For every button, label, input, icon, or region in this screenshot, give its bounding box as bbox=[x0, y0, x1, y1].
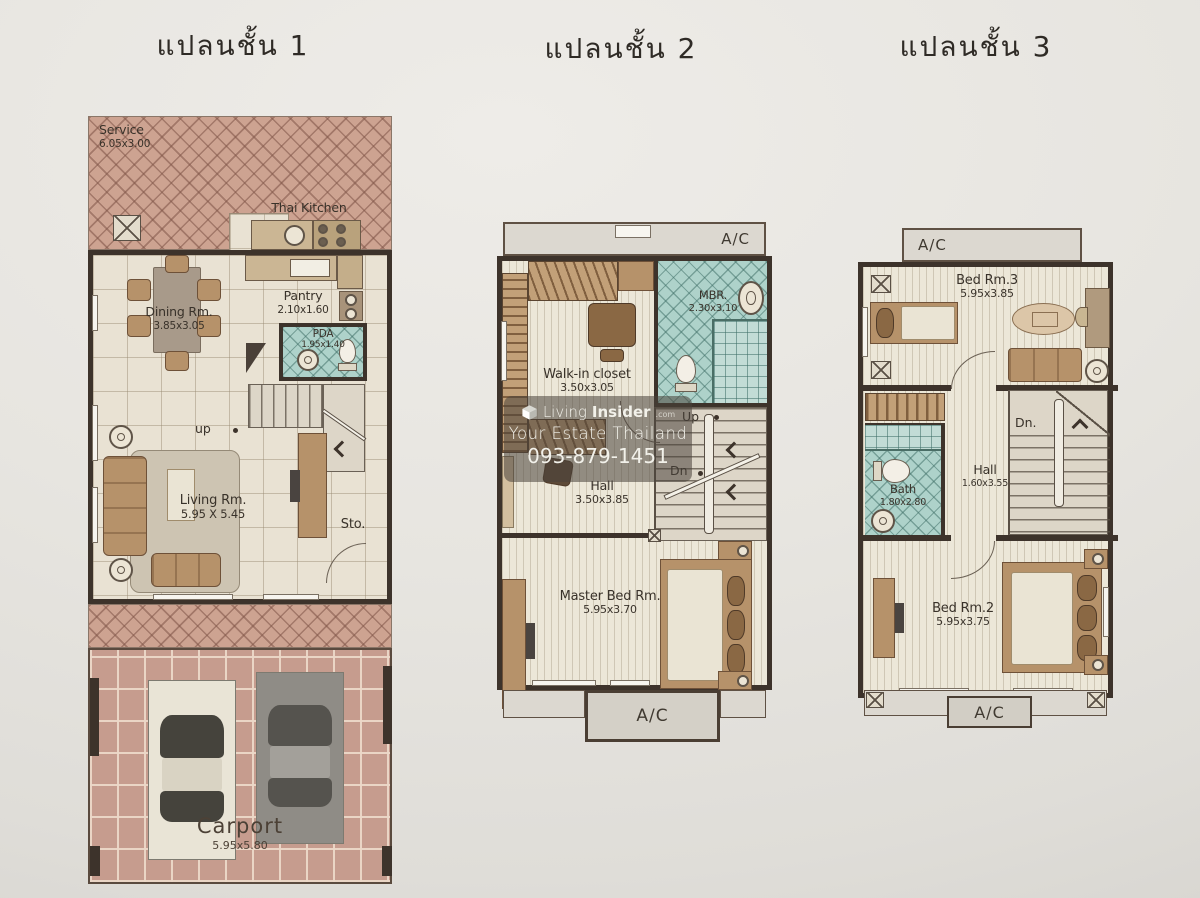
car-roof bbox=[162, 758, 222, 792]
room-name: Bed Rm.3 bbox=[917, 273, 1057, 288]
floor1-pda-room: PDA 1.95x1.40 bbox=[279, 323, 367, 381]
window bbox=[263, 594, 319, 600]
planter-box bbox=[866, 692, 884, 708]
bed bbox=[660, 559, 752, 689]
room-dims: 1.95x1.40 bbox=[283, 340, 363, 351]
stair-break-line bbox=[322, 408, 367, 441]
dining-chair bbox=[197, 279, 221, 301]
window bbox=[610, 680, 650, 686]
bed3-door-arc bbox=[951, 351, 995, 389]
tv-console bbox=[873, 578, 895, 658]
mattress bbox=[667, 569, 723, 681]
cabinet bbox=[618, 261, 654, 291]
floor3-ac-balcony: A/C bbox=[947, 696, 1032, 728]
floor2-ledge-left bbox=[503, 690, 585, 718]
stair-arrow-icon bbox=[334, 441, 351, 458]
floor2-ac-ledge-top: A/C bbox=[503, 222, 766, 256]
wall bbox=[863, 385, 951, 391]
stair-arrow-icon bbox=[726, 484, 743, 501]
floor2-mbr-label: MBR. 2.30x3.10 bbox=[668, 289, 758, 314]
floor1-stair-landing bbox=[323, 384, 365, 472]
watermark-brand: LivingInsider.com bbox=[504, 403, 692, 421]
room-name: Pantry bbox=[253, 289, 353, 304]
column-marker bbox=[648, 529, 661, 542]
stove-icon bbox=[313, 220, 361, 250]
wall-stub bbox=[383, 666, 392, 744]
tv-icon bbox=[895, 603, 904, 633]
floor1-terrace-strip bbox=[88, 604, 392, 648]
burner-icon bbox=[336, 224, 346, 234]
floor2-ac-balcony: A/C bbox=[585, 690, 720, 742]
storage-door-arc bbox=[326, 543, 366, 583]
wall bbox=[863, 535, 951, 541]
pantry-counter bbox=[245, 255, 337, 281]
window bbox=[92, 487, 98, 543]
dining-chair bbox=[165, 351, 189, 371]
vent-box bbox=[615, 225, 651, 238]
brand-tld: .com bbox=[656, 410, 676, 421]
stair-railing bbox=[1054, 399, 1064, 507]
desk-chair bbox=[1075, 307, 1088, 327]
room-dims: 5.95 X 5.45 bbox=[143, 508, 283, 522]
window bbox=[532, 680, 596, 686]
bed2-door-arc bbox=[951, 541, 995, 579]
sofa bbox=[1008, 348, 1082, 382]
dining-chair bbox=[165, 255, 189, 273]
window bbox=[501, 321, 507, 381]
pillow bbox=[1077, 575, 1097, 601]
pillow bbox=[727, 610, 745, 640]
floor3-dn-label: Dn. bbox=[1015, 415, 1037, 430]
room-name: Walk-in closet bbox=[520, 367, 654, 382]
lamp-icon bbox=[1092, 553, 1104, 565]
nightstand bbox=[718, 541, 752, 560]
title-floor2: แปลนชั้น 2 bbox=[501, 27, 741, 71]
room-name: Master Bed Rm. bbox=[530, 589, 690, 604]
toilet-icon bbox=[676, 355, 696, 383]
floor3-bed3-label: Bed Rm.3 5.95x3.85 bbox=[917, 273, 1057, 301]
car-windshield bbox=[268, 705, 332, 746]
oval-table bbox=[1012, 303, 1075, 335]
floor1-up-label: up bbox=[195, 421, 211, 436]
loveseat bbox=[151, 553, 221, 587]
floor2-hall-label: Hall 3.50x3.85 bbox=[542, 479, 662, 507]
lamp-icon bbox=[737, 545, 749, 557]
floor1-storage-label: Sto. bbox=[325, 517, 381, 532]
pillow bbox=[876, 308, 894, 338]
window bbox=[92, 295, 98, 331]
wall-unit bbox=[871, 275, 891, 293]
desk bbox=[1085, 288, 1110, 348]
floor1-service-label: Service 6.05x3.00 bbox=[99, 123, 150, 150]
window bbox=[1103, 587, 1109, 637]
room-dims: 3.85x3.05 bbox=[119, 320, 239, 332]
floorplan-sheet: แปลนชั้น 1 แปลนชั้น 2 แปลนชั้น 3 Service… bbox=[0, 0, 1200, 898]
room-name: Dining Rm. bbox=[119, 305, 239, 320]
window bbox=[153, 594, 233, 600]
floor2-ac-top-label: A/C bbox=[721, 230, 750, 248]
window bbox=[92, 405, 98, 461]
brand-insider: Insider bbox=[592, 403, 651, 421]
burner-icon bbox=[336, 237, 346, 247]
floor1-dining-label: Dining Rm. 3.85x3.05 bbox=[119, 305, 239, 332]
stair-arrow-icon bbox=[726, 442, 743, 459]
floor3-plan: A/C Bed Rm.3 5.95x3.85 bbox=[858, 228, 1113, 730]
title-floor3: แปลนชั้น 3 bbox=[856, 25, 1096, 69]
floor3-ac-ledge-top: A/C bbox=[902, 228, 1082, 262]
wall bbox=[502, 533, 650, 538]
sink-icon bbox=[879, 517, 888, 526]
watermark-phone: 093-879-1451 bbox=[504, 444, 692, 468]
floor3-hall-label: Hall 1.60x3.55 bbox=[945, 463, 1025, 489]
floor1-thai-kitchen-label: Thai Kitchen bbox=[239, 201, 379, 216]
room-dims: 3.50x3.85 bbox=[542, 494, 662, 507]
tv-icon bbox=[290, 470, 300, 502]
floor1-interior: Pantry 2.10x1.60 PDA 1.95x1.40 bbox=[88, 250, 392, 604]
floor2-walkin-label: Walk-in closet 3.50x3.05 bbox=[520, 367, 654, 395]
floor2-master-label: Master Bed Rm. 5.95x3.70 bbox=[530, 589, 690, 617]
nightstand bbox=[1084, 549, 1108, 569]
pillow bbox=[727, 576, 745, 606]
shower bbox=[865, 425, 941, 451]
nightstand bbox=[1084, 655, 1108, 675]
pantry-sink-icon bbox=[290, 259, 330, 277]
room-dims: 1.60x3.55 bbox=[945, 478, 1025, 489]
mattress bbox=[901, 306, 955, 340]
dining-chair bbox=[127, 279, 151, 301]
room-name: Sto. bbox=[325, 517, 381, 532]
toilet-tank-icon bbox=[338, 363, 357, 371]
room-dims: 2.30x3.10 bbox=[668, 303, 758, 315]
floor-lamp-icon bbox=[117, 433, 126, 442]
dressing-table bbox=[588, 303, 636, 347]
burner-icon bbox=[318, 224, 328, 234]
floor1-stairs bbox=[248, 384, 323, 428]
floor2-mbr-bath: MBR. 2.30x3.10 bbox=[654, 261, 767, 407]
sofa bbox=[103, 456, 147, 556]
floor3-interior: Bed Rm.3 5.95x3.85 bbox=[858, 262, 1113, 698]
window bbox=[862, 307, 868, 357]
lamp-icon bbox=[737, 675, 749, 687]
floor3-ac-top-label: A/C bbox=[918, 236, 947, 254]
kitchen-counter bbox=[251, 220, 313, 250]
room-name: Carport bbox=[90, 814, 390, 838]
floor1-pantry-label: Pantry 2.10x1.60 bbox=[253, 289, 353, 316]
room-dims: 5.95x3.70 bbox=[530, 604, 690, 617]
room-name: Living Rm. bbox=[143, 493, 283, 508]
floor1-service-area: Service 6.05x3.00 Thai Kitchen bbox=[88, 116, 392, 250]
bed bbox=[870, 302, 958, 344]
floor1-plan: Service 6.05x3.00 Thai Kitchen bbox=[88, 116, 392, 884]
floor3-bed2-label: Bed Rm.2 5.95x3.75 bbox=[905, 601, 1021, 629]
leader-dot bbox=[698, 471, 703, 476]
lamp-icon bbox=[1092, 659, 1104, 671]
floor1-living-label: Living Rm. 5.95 X 5.45 bbox=[143, 493, 283, 522]
wall bbox=[996, 535, 1118, 541]
floor3-bath: Bath 1.80x2.80 bbox=[865, 423, 945, 538]
floor1-carport-label: Carport 5.95x5.80 bbox=[90, 814, 390, 852]
room-dims: 2.10x1.60 bbox=[253, 304, 353, 316]
room-dims: 5.95x3.75 bbox=[905, 616, 1021, 629]
room-name: Thai Kitchen bbox=[239, 201, 379, 216]
fridge-icon bbox=[337, 255, 363, 289]
floor2-plan: A/C Walk-in closet 3.50x3.05 MBR. 2.30x3… bbox=[497, 222, 772, 747]
watermark: LivingInsider.com Your Estate Thailand 0… bbox=[504, 396, 692, 482]
room-dims: 3.50x3.05 bbox=[520, 382, 654, 395]
room-name: Bath bbox=[865, 483, 941, 497]
washer-icon bbox=[113, 215, 141, 241]
car-rear-window bbox=[268, 778, 332, 807]
floor1-pda-label: PDA 1.95x1.40 bbox=[283, 328, 363, 351]
stool bbox=[600, 349, 624, 362]
floor1-carport: Carport 5.95x5.80 bbox=[88, 648, 392, 884]
floor-lamp-icon bbox=[117, 566, 126, 575]
watermark-line2: Your Estate Thailand bbox=[504, 424, 692, 443]
planter-box bbox=[1087, 692, 1105, 708]
room-name: Hall bbox=[945, 463, 1025, 478]
burner-icon bbox=[318, 237, 328, 247]
leader-dot bbox=[233, 428, 238, 433]
wardrobe bbox=[528, 261, 618, 301]
floor2-ac-bottom-label: A/C bbox=[588, 706, 717, 726]
wardrobe bbox=[865, 393, 945, 421]
tv-console bbox=[298, 433, 327, 538]
shower bbox=[712, 319, 767, 403]
room-name: Service bbox=[99, 123, 150, 138]
room-name: Bed Rm.2 bbox=[905, 601, 1021, 616]
pillow bbox=[1077, 605, 1097, 631]
tv-icon bbox=[526, 623, 535, 659]
sink-icon bbox=[304, 356, 312, 364]
toilet-tank-icon bbox=[675, 383, 697, 392]
room-dims: 5.95x5.80 bbox=[90, 839, 390, 852]
pillow bbox=[727, 644, 745, 674]
nightstand bbox=[718, 671, 752, 690]
room-name: PDA bbox=[283, 328, 363, 340]
understair-door-wedge bbox=[246, 343, 266, 373]
title-floor1: แปลนชั้น 1 bbox=[113, 24, 353, 68]
wall-stub bbox=[90, 678, 99, 756]
brand-living: Living bbox=[543, 403, 587, 421]
car-roof bbox=[270, 746, 330, 778]
livinginsider-logo-icon bbox=[521, 404, 538, 421]
toilet-tank-icon bbox=[873, 461, 882, 481]
wall-unit bbox=[871, 361, 891, 379]
ceiling-fan-icon bbox=[1093, 367, 1102, 376]
room-dims: 5.95x3.85 bbox=[917, 288, 1057, 301]
room-name: MBR. bbox=[668, 289, 758, 303]
table-inset bbox=[1032, 312, 1058, 327]
room-dims: 1.80x2.80 bbox=[865, 497, 941, 508]
floor3-bath-label: Bath 1.80x2.80 bbox=[865, 483, 941, 508]
car-windshield bbox=[160, 715, 224, 758]
floor2-ledge-right bbox=[720, 690, 766, 718]
room-dims: 6.05x3.00 bbox=[99, 138, 150, 150]
floor3-ac-bottom-label: A/C bbox=[949, 703, 1030, 722]
leader-dot bbox=[714, 415, 719, 420]
toilet-icon bbox=[882, 459, 910, 483]
kitchen-sink-icon bbox=[284, 225, 305, 246]
